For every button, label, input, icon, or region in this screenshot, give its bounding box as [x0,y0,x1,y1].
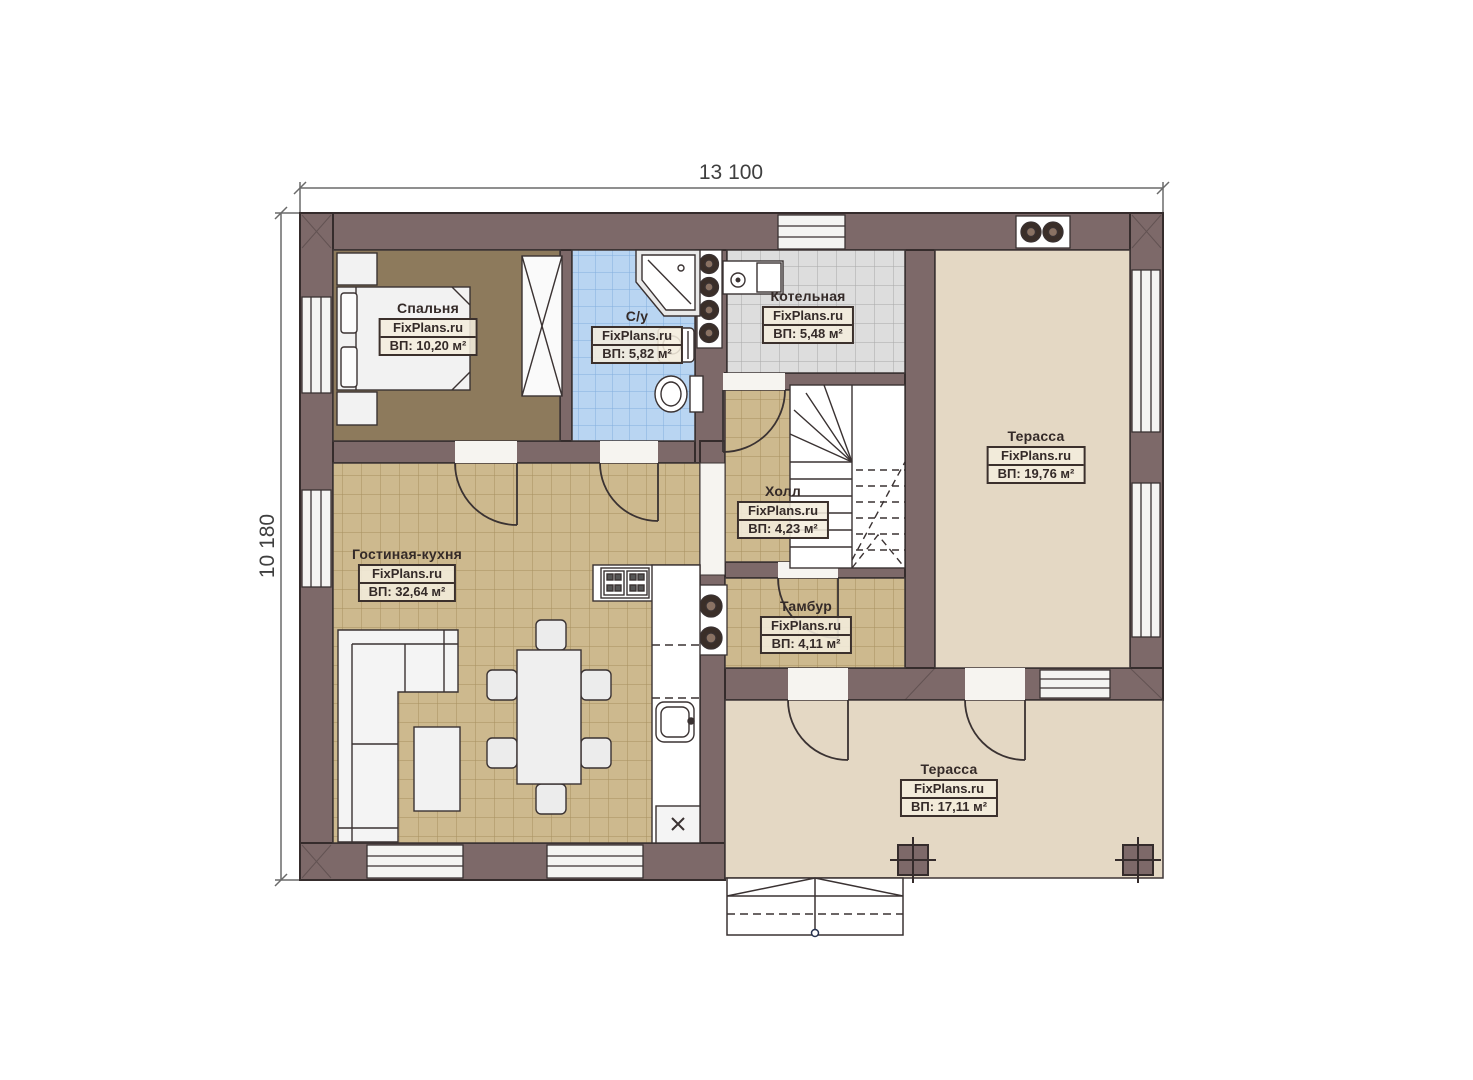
toilet [655,376,703,412]
staircase [790,385,905,568]
window-terrace-bottom [1040,670,1110,698]
floor-plan-page: 13 100 10 180 Спальня FixPlans.ru ВП: 10… [0,0,1473,1080]
room-area: ВП: 4,11 м² [762,636,850,652]
room-name: Гостиная-кухня [352,546,462,562]
window-terrace-right-1 [1132,270,1160,432]
room-name: Холл [737,483,829,499]
room-info-box: FixPlans.ru ВП: 5,82 м² [591,326,683,364]
window-living-bottom-1 [367,845,463,878]
stove [601,568,649,598]
entry-steps [727,878,903,937]
dimension-height-label: 10 180 [256,514,280,578]
room-name: Терасса [900,761,998,777]
window-terrace-right-2 [1132,483,1160,637]
room-area: ВП: 17,11 м² [902,799,996,815]
room-area: ВП: 5,82 м² [593,346,681,362]
kitchen-sink [656,702,694,742]
watermark-text: FixPlans.ru [593,328,681,346]
watermark-text: FixPlans.ru [762,618,850,636]
wardrobe [522,256,562,396]
room-name: С/у [591,308,683,324]
room-area: ВП: 19,76 м² [989,466,1084,482]
watermark-text: FixPlans.ru [764,308,852,326]
room-label-bedroom: Спальня FixPlans.ru ВП: 10,20 м² [379,300,478,356]
window-boiler-top [778,215,845,249]
room-info-box: FixPlans.ru ВП: 32,64 м² [358,564,457,602]
window-living-bottom-2 [547,845,643,878]
watermark-text: FixPlans.ru [381,320,476,338]
room-area: ВП: 4,23 м² [739,521,827,537]
room-area: ВП: 10,20 м² [381,338,476,354]
room-info-box: FixPlans.ru ВП: 19,76 м² [987,446,1086,484]
room-name: Терасса [987,428,1086,444]
chimney-bathroom-pipes [697,250,722,348]
room-name: Тамбур [760,598,852,614]
room-area: ВП: 5,48 м² [764,326,852,342]
watermark-text: FixPlans.ru [989,448,1084,466]
room-name: Спальня [379,300,478,316]
watermark-text: FixPlans.ru [739,503,827,521]
room-label-living-kitchen: Гостиная-кухня FixPlans.ru ВП: 32,64 м² [352,546,462,602]
room-info-box: FixPlans.ru ВП: 5,48 м² [762,306,854,344]
watermark-text: FixPlans.ru [360,566,455,584]
window-living-left [302,490,331,587]
window-bedroom-left [302,297,331,393]
room-info-box: FixPlans.ru ВП: 17,11 м² [900,779,998,817]
dimension-width-label: 13 100 [699,161,763,185]
room-label-vestibule: Тамбур FixPlans.ru ВП: 4,11 м² [760,598,852,654]
room-name: Котельная [762,288,854,304]
coffee-table [414,727,460,811]
chimney-top [1016,216,1070,248]
kitchen-end-unit [656,806,700,843]
room-label-hall: Холл FixPlans.ru ВП: 4,23 м² [737,483,829,539]
room-area: ВП: 32,64 м² [360,584,455,600]
room-info-box: FixPlans.ru ВП: 4,11 м² [760,616,852,654]
room-info-box: FixPlans.ru ВП: 10,20 м² [379,318,478,356]
room-label-terrace-upper: Терасса FixPlans.ru ВП: 19,76 м² [987,428,1086,484]
watermark-text: FixPlans.ru [902,781,996,799]
room-info-box: FixPlans.ru ВП: 4,23 м² [737,501,829,539]
room-label-terrace-lower: Терасса FixPlans.ru ВП: 17,11 м² [900,761,998,817]
room-label-boiler: Котельная FixPlans.ru ВП: 5,48 м² [762,288,854,344]
room-label-bathroom: С/у FixPlans.ru ВП: 5,82 м² [591,308,683,364]
passage-living-hall [700,463,725,575]
